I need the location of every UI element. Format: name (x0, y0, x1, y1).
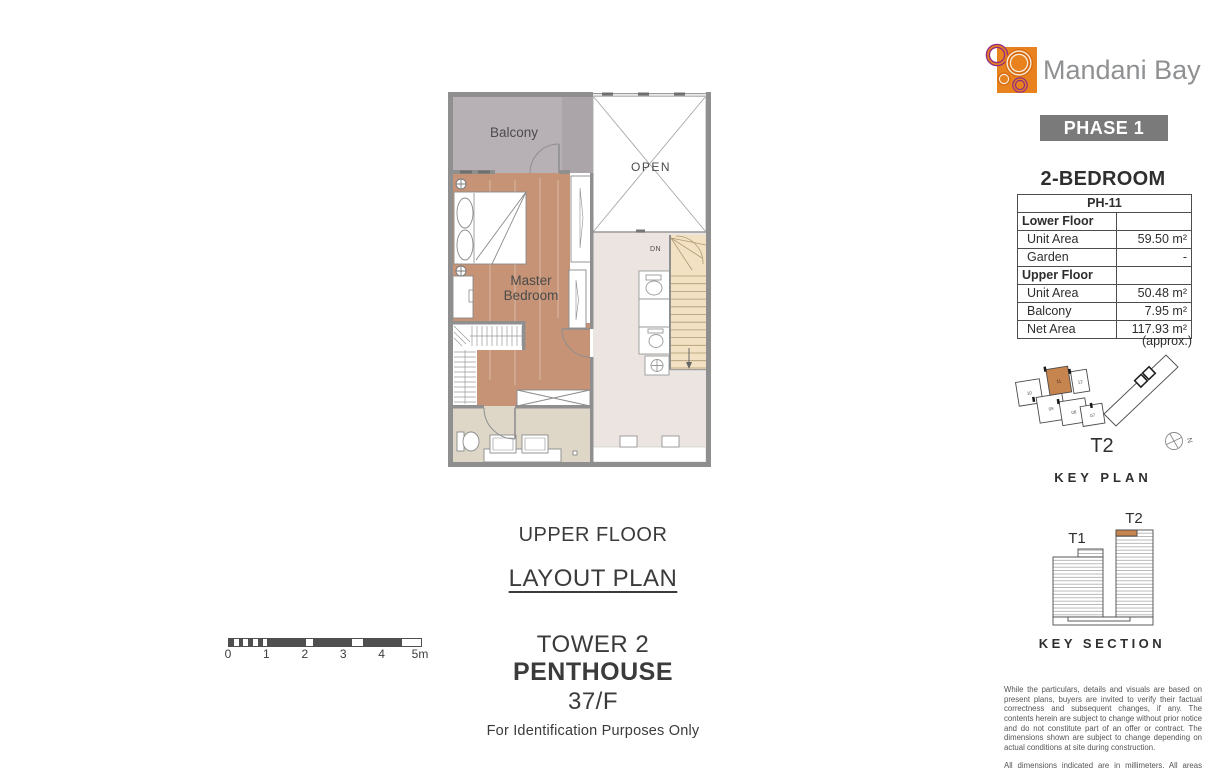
north-label: N (1185, 437, 1193, 443)
unit-type-heading: 2-BEDROOM (1008, 168, 1198, 191)
table-row: Garden- (1018, 249, 1192, 267)
tower-wing (1104, 355, 1178, 426)
key-section-title: KEY SECTION (1022, 636, 1182, 651)
key-section-drawing: T1 T2 (1028, 503, 1178, 631)
table-row: Upper Floor (1018, 267, 1192, 285)
scale-tick: 5m (412, 647, 429, 661)
master-bedroom-label: Master Bedroom (483, 273, 579, 303)
north-compass-icon: N (1166, 433, 1193, 450)
table-row: Unit Area59.50 m² (1018, 231, 1192, 249)
sheet-title: LAYOUT PLAN (443, 565, 743, 593)
scale-bar-graphic (228, 638, 422, 647)
disclaimer-paragraph: While the particulars, details and visua… (1004, 685, 1202, 753)
table-row: Unit Area50.48 m² (1018, 285, 1192, 303)
identification-note: For Identification Purposes Only (443, 723, 743, 739)
unit-id: PH-11 (1018, 195, 1192, 213)
brand-name: Mandani Bay (1043, 55, 1201, 86)
floor-title: UPPER FLOOR (443, 524, 743, 547)
penthouse-highlight (1116, 530, 1137, 536)
approx-note: (approx.) (1017, 334, 1192, 348)
staircase (671, 235, 706, 370)
area-table: PH-11 Lower Floor Unit Area59.50 m² Gard… (1017, 194, 1192, 339)
scale-tick: 4 (378, 647, 385, 661)
key-plan-tower-label: T2 (1058, 435, 1146, 458)
open-area-label: OPEN (611, 160, 691, 174)
wardrobe (517, 390, 590, 406)
unit-type-title: PENTHOUSE (443, 658, 743, 687)
logo-ring-icon (1011, 55, 1027, 71)
scale-tick: 3 (340, 647, 347, 661)
table-row: Lower Floor (1018, 213, 1192, 231)
mandani-bay-logo-icon (997, 47, 1037, 93)
tower-t2-label: T2 (1125, 510, 1143, 527)
level-title: 37/F (443, 688, 743, 716)
scale-tick: 2 (301, 647, 308, 661)
logo-ring-icon (1016, 81, 1024, 89)
scale-tick: 1 (263, 647, 270, 661)
balcony-label: Balcony (474, 125, 554, 140)
phase-badge: PHASE 1 (1040, 115, 1168, 141)
layout-plan-page: Balcony OPEN Master Bedroom DN UPPER FLO… (0, 0, 1211, 768)
bed (454, 192, 526, 264)
built-in-cabinets (569, 176, 592, 328)
table-row: PH-11 (1018, 195, 1192, 213)
disclaimer-paragraph: All dimensions indicated are in millimet… (1004, 761, 1202, 768)
tower-t1-label: T1 (1068, 530, 1086, 547)
scale-tick-labels: 0 1 2 3 4 5m (228, 647, 422, 661)
table-row: Balcony7.95 m² (1018, 303, 1192, 321)
logo-ring-icon (1000, 75, 1008, 83)
scale-tick: 0 (225, 647, 232, 661)
disclaimer: While the particulars, details and visua… (1004, 685, 1202, 768)
stairs-down-label: DN (650, 246, 676, 253)
floor-plan: Balcony OPEN Master Bedroom DN (440, 80, 725, 480)
unit-cluster: 10 11 12 09 08 07 (1014, 359, 1105, 436)
tower-title: TOWER 2 (443, 631, 743, 659)
logo-ring-icon (990, 48, 1004, 62)
scale-bar: 0 1 2 3 4 5m (228, 636, 422, 664)
key-plan-title: KEY PLAN (1018, 470, 1188, 485)
